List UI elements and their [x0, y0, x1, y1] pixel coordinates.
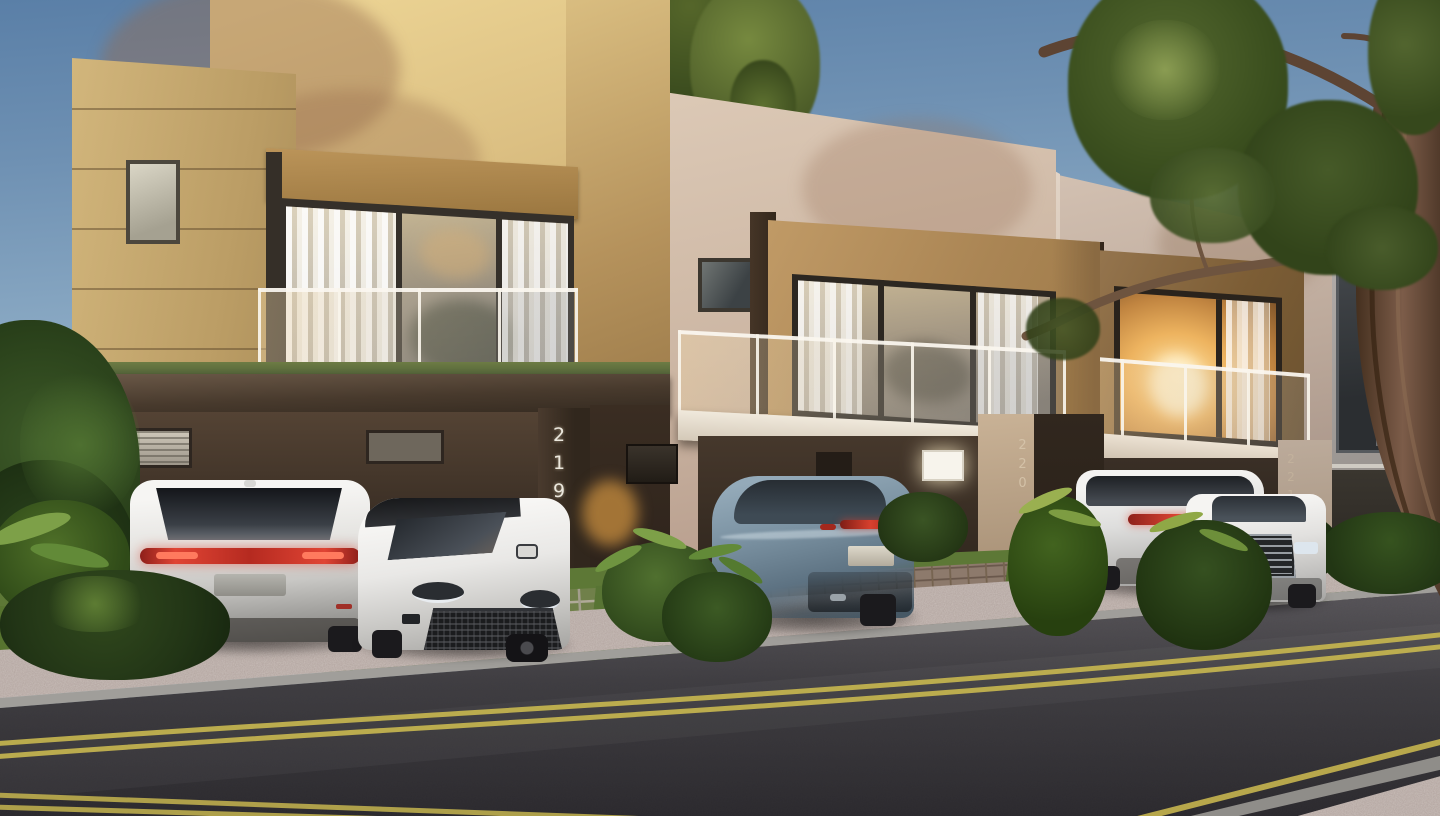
- shrubs-house2: [592, 512, 782, 672]
- left-front-bushes: [0, 490, 280, 690]
- taillight-inner: [820, 524, 836, 530]
- bush: [1136, 520, 1272, 650]
- bush: [662, 572, 772, 662]
- bush: [1320, 512, 1440, 594]
- tree-foliage: [1150, 148, 1275, 243]
- headlight: [1294, 542, 1318, 554]
- car-body: [358, 498, 570, 650]
- bush-highlight: [40, 576, 150, 632]
- rear-reflector: [336, 604, 352, 609]
- shrubs-house3: [1008, 486, 1288, 656]
- exhaust-tip: [830, 594, 846, 601]
- tree-foliage: [1026, 298, 1100, 360]
- side-mirror: [516, 544, 538, 559]
- tree-foliage-highlight: [1110, 20, 1220, 120]
- wheel: [1288, 584, 1316, 608]
- headlight: [412, 582, 464, 603]
- wheel: [506, 634, 548, 662]
- taillight-segment: [302, 552, 344, 559]
- townhouse-render-scene: 221: [0, 0, 1440, 816]
- tree-foliage: [1326, 206, 1438, 290]
- wheel: [372, 630, 402, 658]
- roof-antenna: [244, 480, 256, 487]
- windshield: [385, 512, 509, 560]
- wheel: [860, 594, 896, 626]
- headlight: [520, 590, 560, 611]
- fog-slot: [402, 614, 420, 624]
- bush-behind-car: [878, 492, 968, 562]
- car-gr-yaris: [354, 490, 574, 664]
